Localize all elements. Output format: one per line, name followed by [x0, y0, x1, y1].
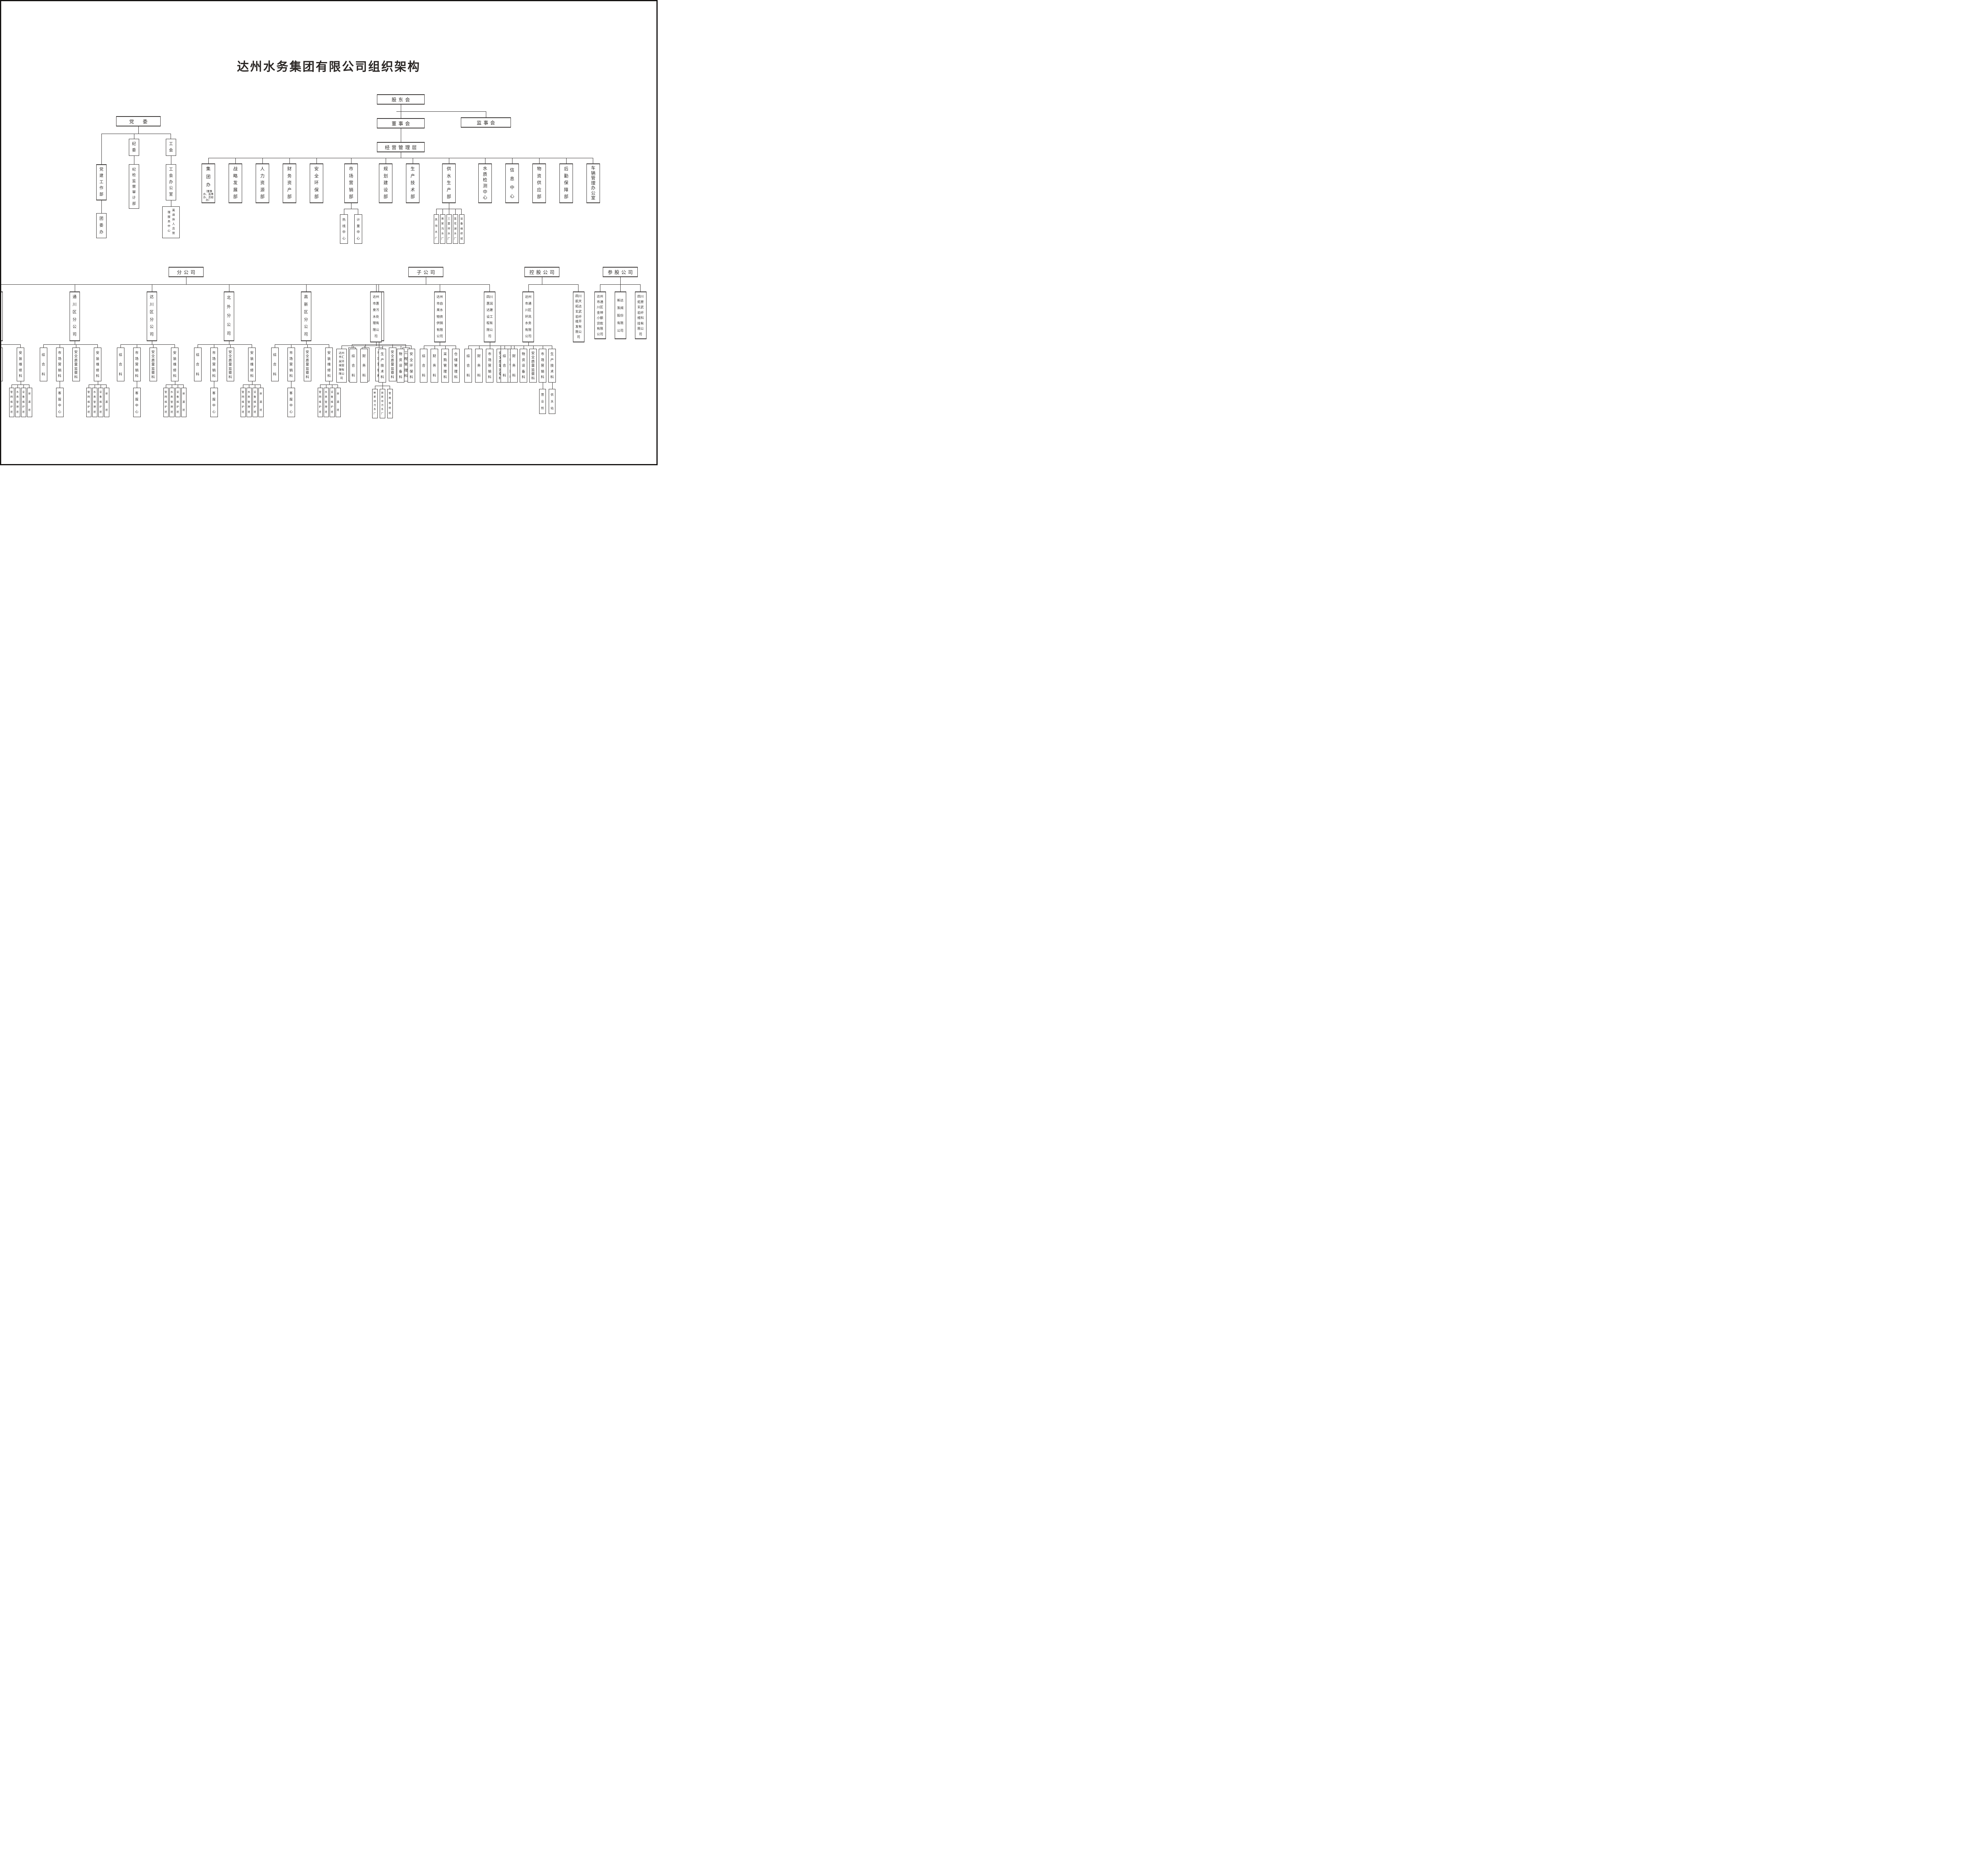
- org-node-box: 安装维修科: [171, 348, 179, 381]
- org-level: 分公司市中区分公司综合科市场营销科客服中心安全质量监察科安装维修科管网维护班水表…: [9, 267, 363, 417]
- org-node-box: 党建工作部: [96, 164, 107, 200]
- org-branch: 计量中心: [351, 209, 365, 244]
- org-node-label: 物资供应部: [536, 166, 542, 201]
- org-node-label: 达州市通川区金坤小额贷款有限公司: [596, 294, 604, 337]
- tree-invested: 参股公司达州市通川区金坤小额贷款有限公司新达泵阀股份有限公司四川炬原玄武岩纤维科…: [588, 267, 652, 339]
- org-node-box: 安全质量监察科: [389, 348, 396, 381]
- org-branch: 工会工会办公室离退休人员管理服务中心: [150, 134, 192, 238]
- org-node-label: 综合科: [41, 350, 46, 379]
- org-level: 管网维护班水表管理班设备维护班探漏班: [163, 381, 187, 417]
- org-branch: 安装维修科管网维护班水表管理班设备维护班探漏班: [237, 344, 267, 417]
- org-node-box: 信息中心: [505, 163, 519, 203]
- org-node-label: 综合科: [273, 350, 277, 379]
- org-node-label: 生产技术科: [380, 351, 384, 380]
- org-node-box: 市场营销科: [287, 348, 295, 381]
- org-node-label: 达州市汇泉环境管理有限公司: [338, 351, 345, 380]
- org-node-box: 设备维护班: [21, 388, 26, 417]
- org-node-box: 经营管理层: [377, 142, 425, 152]
- org-branch: 采购管理科: [440, 346, 450, 383]
- org-node-label: 凤翎水厂: [435, 217, 438, 241]
- org-branch: 纪委纪检监察审计部: [118, 134, 150, 238]
- org-node-label: 新达泵阀股份有限公司: [617, 297, 624, 334]
- org-node-box: 市中区分公司: [0, 291, 3, 341]
- org-node-label: 安全质量监察科: [151, 350, 155, 379]
- org-node-label: 参股公司: [606, 269, 635, 276]
- org-branch: 设备维护班: [252, 385, 258, 417]
- org-level: 综合科市场营销科客服中心安全质量监察科安装维修科管网维护班水表管理班设备维护班探…: [0, 341, 35, 417]
- org-level: 客服中心: [285, 381, 298, 417]
- org-node-box: 安全质量监察科: [0, 348, 3, 381]
- org-level: 客服中心: [130, 381, 144, 417]
- org-node-label: 客服中心: [135, 390, 139, 415]
- org-node-box: 达州市汇泉环境管理有限公司: [336, 349, 347, 383]
- org-node-label: 物资设备科: [521, 351, 526, 380]
- org-node-box: 探漏班: [181, 388, 186, 417]
- org-node-box: 后勤保障部: [559, 163, 573, 203]
- org-branch: 党建工作部团委办: [85, 134, 118, 238]
- org-node-label: 市场营销科: [540, 351, 545, 380]
- org-node-box: 纪检监察审计部: [129, 164, 139, 209]
- org-branch: 探漏班: [335, 385, 341, 417]
- org-node-label: 财务科: [362, 351, 366, 380]
- org-node-box: 四川炬原玄武岩纤维科技有限公司: [635, 291, 646, 339]
- org-node-box: 达州市自来水物资供销有限公司: [434, 291, 446, 342]
- org-node-box: 客服中心: [210, 388, 218, 417]
- org-node-label: 市场营销科: [135, 350, 139, 379]
- org-node-box: 莲花湖水厂: [453, 214, 458, 244]
- org-node-box: 市场营销科: [486, 349, 493, 383]
- org-node-box: 财务科: [360, 349, 368, 383]
- org-node-label: 党建工作部: [99, 167, 104, 198]
- org-node-box: 综合科: [271, 348, 279, 381]
- org-level: 团委办: [91, 200, 112, 238]
- org-level: 综合科市场营销科客服中心安全质量监察科安装维修科管网维护班水表管理班设备维护班探…: [114, 341, 190, 417]
- org-branch: 物资设备科: [519, 346, 528, 414]
- org-branch: 纪检监察审计部: [123, 164, 145, 209]
- org-node-label: 达州市惠泉污水处理有限公司: [372, 294, 380, 340]
- org-level: 管网维护班水表管理班设备维护班探漏班: [9, 381, 33, 417]
- org-branch: 安全环保部: [303, 158, 330, 244]
- org-node-label: 安全质量监察科: [531, 351, 535, 380]
- tree-holding: 控股公司达州市通川区环凤水务有限公司综合科财务科物资设备科安全质量监察科市场营销…: [496, 267, 588, 414]
- org-branch: 党 委党建工作部团委办纪委纪检监察审计部工会工会办公室离退休人员管理服务中心: [83, 116, 193, 238]
- org-branch: 综合科: [37, 344, 50, 417]
- org-branch: 设备维护班: [98, 385, 104, 417]
- org-node-label: 工会办公室: [169, 167, 174, 198]
- org-node-subtext: （董事办、监事办、总经办）: [202, 190, 214, 202]
- org-branch: 莲花湖水厂: [452, 209, 458, 244]
- org-node-box: 探漏班: [336, 388, 341, 417]
- org-level: 达州市通川区环凤水务有限公司综合科财务科物资设备科安全质量监察科市场营销科营业所…: [492, 277, 592, 414]
- org-node-box: 控股公司: [524, 267, 559, 277]
- org-node-label: 探漏班: [182, 390, 185, 415]
- org-node-box: 监事会: [461, 117, 511, 128]
- org-branch: 综合科: [268, 344, 282, 417]
- org-node-box: 股东会: [377, 94, 425, 105]
- org-branch: 物资供应部: [526, 158, 553, 244]
- org-branch: 通川区分公司综合科市场营销科客服中心安全质量监察科安装维修科管网维护班水表管理班…: [36, 284, 113, 417]
- org-node-label: 仓储管理科: [454, 351, 458, 380]
- org-node-label: 通川区分公司: [72, 294, 77, 339]
- org-node-box: 高新区分公司: [301, 291, 311, 341]
- org-node-label: 安装维修科: [18, 350, 23, 379]
- org-node-box: 计量中心: [354, 214, 362, 244]
- org-branch: 新达泵阀股份有限公司: [610, 284, 631, 339]
- org-node-label: 规划建设部: [383, 166, 388, 201]
- org-branch: 客服中心: [285, 388, 298, 417]
- org-branch: 达州市通川区金坤小额贷款有限公司: [590, 284, 610, 339]
- org-branch: 设备维修班: [458, 209, 465, 244]
- org-branch: 吴家沟水厂: [439, 209, 446, 244]
- org-node-label: 管网维修班: [388, 391, 392, 416]
- org-node-box: 安全质量监察科: [227, 348, 234, 381]
- org-branch: 后勤保障部: [553, 158, 580, 244]
- org-node-label: 设备维护班: [330, 390, 334, 415]
- org-node-label: 综合科: [421, 351, 426, 380]
- org-node-label: 安装维修科: [327, 350, 331, 379]
- org-node-box: 管网维护班: [163, 388, 169, 417]
- org-node-box: 安装维修科: [325, 348, 333, 381]
- org-branch: 市场营销科客服中心: [50, 344, 69, 417]
- org-node-box: 水质检测中心: [478, 163, 492, 203]
- org-node-label: 探漏班: [28, 390, 31, 415]
- org-node-label: 设备维护班: [176, 390, 179, 415]
- org-node-box: 生产技术科: [379, 349, 386, 383]
- org-branch: 离退休人员管理服务中心: [161, 206, 181, 238]
- org-branch: 市场营销科客服中心: [204, 344, 223, 417]
- org-branch: 车辆管理办公室: [580, 158, 607, 244]
- org-node-box: 市场营销部: [344, 163, 358, 203]
- org-node-box: 党 委: [116, 116, 161, 126]
- org-branch: 客服中心: [208, 388, 221, 417]
- org-branch: 战略发展部: [222, 158, 249, 244]
- org-node-box: 综合科: [420, 349, 427, 383]
- org-node-box: 市场营销科: [56, 348, 64, 381]
- org-node-box: 凤翎水厂: [434, 214, 439, 244]
- org-node-label: 市场营销科: [289, 350, 293, 379]
- org-node-box: 鲜家坝污水厂: [372, 389, 378, 418]
- org-node-box: 探漏班: [258, 388, 264, 417]
- org-level: 董事会经营管理层集团办（董事办、监事办、总经办）战略发展部人力资源部财务资产部安…: [193, 105, 608, 244]
- org-branch: 凤翎水厂: [433, 209, 439, 244]
- org-node-label: 达川区分公司: [149, 294, 154, 339]
- org-branch: 水表管理班: [246, 385, 252, 417]
- org-node-label: 综合科: [466, 351, 470, 380]
- org-node-box: 探漏班: [27, 388, 32, 417]
- org-node-box: 达州市通川区金坤小额贷款有限公司: [594, 291, 606, 339]
- org-node-box: 热线中心: [340, 214, 348, 244]
- org-node-box: 安全质量监察科: [149, 348, 157, 381]
- org-node-label: 经营管理层: [383, 144, 419, 151]
- org-node-label: 水质检测中心: [482, 166, 488, 201]
- org-branch: 财务科: [474, 346, 484, 383]
- org-branch: 人力资源部: [249, 158, 276, 244]
- org-level: 综合科市场营销科客服中心安全质量监察科安装维修科管网维护班水表管理班设备维护班探…: [268, 341, 344, 417]
- org-level: 集团办（董事办、监事办、总经办）战略发展部人力资源部财务资产部安全环保部市场营销…: [195, 152, 607, 244]
- org-branch: 市场营销科营业所: [538, 346, 547, 414]
- org-level: 综合科市场营销科客服中心安全质量监察科安装维修科管网维护班水表管理班设备维护班探…: [191, 341, 267, 417]
- org-node-box: 安全质量监察科: [72, 348, 80, 381]
- org-node-label: 安全环保部: [314, 166, 319, 201]
- org-level: 子公司达州市惠泉污水处理有限公司达州市汇泉环境管理有限公司综合科财务科生产技术科…: [334, 267, 517, 418]
- org-node-label: 客服中心: [212, 390, 216, 415]
- org-branch: 综合科: [191, 344, 204, 417]
- org-node-label: 客服中心: [289, 390, 293, 415]
- org-branch: 财务科: [509, 346, 519, 414]
- org-node-label: 达州市自来水物资供销有限公司: [436, 294, 444, 340]
- org-branch: 安装维修科管网维护班水表管理班设备维护班探漏班: [83, 344, 113, 417]
- org-node-box: 客服中心: [133, 388, 141, 417]
- org-node-label: 水表管理班: [93, 390, 96, 415]
- org-node-box: 安装维修科: [94, 348, 101, 381]
- org-node-box: 吴家沟水厂: [440, 214, 445, 244]
- org-level: 营业所: [539, 383, 546, 414]
- org-branch: 达川区分公司综合科市场营销科客服中心安全质量监察科安装维修科管网维护班水表管理班…: [113, 284, 190, 417]
- org-node-box: 营业所: [539, 389, 546, 414]
- org-branch: 综合科: [348, 346, 359, 418]
- org-branch: 综合科: [463, 346, 474, 383]
- org-node-label: 物资设备科: [398, 351, 403, 380]
- org-node-box: 财务资产部: [283, 163, 296, 203]
- org-node-box: 水表管理班: [247, 388, 252, 417]
- org-node-label: 党 委: [127, 118, 149, 125]
- org-node-box: 综合科: [40, 348, 47, 381]
- org-branch: 客服中心: [130, 388, 144, 417]
- org-node-box: 供水站: [549, 389, 555, 414]
- org-node-box: 设备维护班: [330, 388, 335, 417]
- org-branch: 管网维护班: [240, 385, 246, 417]
- org-node-label: 探漏班: [105, 390, 108, 415]
- org-branch: 管网维护班: [317, 385, 323, 417]
- org-node-box: 分公司: [169, 267, 204, 277]
- org-branch: 水表管理班: [323, 385, 329, 417]
- org-branch: 生产技术科供水站: [547, 346, 557, 414]
- org-branch: 安全质量监察科: [69, 344, 83, 417]
- org-node-label: 安全环保科: [409, 351, 414, 380]
- org-node-label: 股东会: [390, 96, 412, 103]
- org-node-label: 鲜家坝污水厂: [373, 391, 377, 416]
- org-branch: 高新区分公司综合科市场营销科客服中心安全质量监察科安装维修科管网维护班水表管理班…: [268, 284, 345, 417]
- org-node-box: 设备维修班: [459, 214, 464, 244]
- org-branch: 市中区分公司综合科市场营销科客服中心安全质量监察科安装维修科管网维护班水表管理班…: [0, 284, 36, 417]
- org-node-box: 仓储管理科: [452, 349, 460, 383]
- org-node-label: 控股公司: [527, 269, 556, 276]
- org-node-box: 战略发展部: [229, 163, 242, 203]
- org-node-label: 市场营销科: [58, 350, 62, 379]
- org-node-box: 四川惠润达建设工程有限公司: [484, 291, 495, 342]
- org-level: 供水站: [549, 383, 555, 414]
- org-level: 党 委党建工作部团委办纪委纪检监察审计部工会工会办公室离退休人员管理服务中心: [97, 116, 180, 238]
- org-node-label: 纪委: [132, 141, 137, 153]
- org-node-label: 设备维护班: [99, 390, 102, 415]
- org-branch: 管网维修班: [386, 386, 394, 418]
- org-level: 鲜家坝污水厂周家坝污水厂管网维修班: [371, 383, 394, 418]
- org-node-label: 设备维修班: [460, 217, 463, 241]
- org-node-label: 莲花湖水厂: [454, 217, 457, 241]
- org-node-label: 子公司: [415, 269, 437, 276]
- org-level: 客服中心: [53, 381, 66, 417]
- org-chart-page: 达州水务集团有限公司组织架构 监事会 股东会董事会经营管理层集团办（董事办、监事…: [0, 0, 658, 465]
- org-branch: 设备维护班: [21, 385, 27, 417]
- org-node-box: 达州市通川区环凤水务有限公司: [522, 291, 534, 342]
- org-node-label: 周家坝污水厂: [381, 391, 384, 416]
- org-node-label: 纪检监察审计部: [132, 167, 136, 206]
- org-node-box: 综合科: [464, 349, 472, 383]
- org-node-box: 管网维修班: [387, 389, 393, 418]
- org-node-label: 财务资产部: [287, 166, 292, 201]
- org-node-label: 供水生产部: [446, 166, 452, 201]
- org-level: 股东会董事会经营管理层集团办（董事办、监事办、总经办）战略发展部人力资源部财务资…: [202, 94, 600, 244]
- org-branch: 三里坪水厂: [446, 209, 452, 244]
- org-node-label: 分公司: [175, 269, 197, 276]
- org-node-label: 探漏班: [336, 390, 340, 415]
- org-level: 管网维护班水表管理班设备维护班探漏班: [240, 381, 264, 417]
- org-branch: 北外分公司综合科市场营销科客服中心安全质量监察科安装维修科管网维护班水表管理班设…: [190, 284, 268, 417]
- org-level: 综合科市场营销科客服中心安全质量监察科安装维修科管网维护班水表管理班设备维护班探…: [37, 341, 113, 417]
- org-node-box: 安装维修科: [17, 348, 24, 381]
- org-branch: 设备维护班: [329, 385, 335, 417]
- org-node-box: 财务科: [510, 349, 518, 383]
- org-node-label: 安装维修科: [250, 350, 254, 379]
- org-branch: 市场营销科客服中心: [127, 344, 146, 417]
- org-node-label: 市场营销部: [348, 166, 354, 201]
- org-branch: 水表管理班: [92, 385, 98, 417]
- org-node-label: 供水站: [550, 391, 554, 412]
- org-node-box: 综合科: [194, 348, 202, 381]
- connector-line: [396, 111, 486, 112]
- org-branch: 安全环保科: [406, 346, 417, 418]
- org-branch: 探漏班: [258, 385, 264, 417]
- org-branch: 参股公司达州市通川区金坤小额贷款有限公司新达泵阀股份有限公司四川炬原玄武岩纤维科…: [589, 267, 652, 339]
- org-branch: 水质检测中心: [472, 158, 499, 244]
- org-level: 热线中心计量中心: [337, 203, 365, 244]
- org-node-label: 财务科: [512, 351, 516, 380]
- org-branch: 信息中心: [499, 158, 526, 244]
- org-node-box: 水表管理班: [15, 388, 20, 417]
- org-node-box: 人力资源部: [256, 163, 269, 203]
- org-branch: 综合科: [500, 346, 509, 414]
- org-node-label: 设备维护班: [22, 390, 25, 415]
- org-node-box: 集团办（董事办、监事办、总经办）: [202, 163, 215, 203]
- org-node-box: 物资供应部: [532, 163, 546, 203]
- org-level: 综合科财务科采购管理科仓储管理科: [418, 342, 461, 383]
- org-level: 综合科财务科市场营销科安全质量监察科工程管理科: [463, 342, 516, 383]
- org-branch: 达州市自来水物资供销有限公司综合科财务科采购管理科仓储管理科: [417, 284, 462, 418]
- org-node-label: 水表管理班: [324, 390, 328, 415]
- org-node-box: 安全环保科: [408, 349, 415, 383]
- org-node-label: 安全质量监察科: [390, 350, 395, 379]
- org-branch: 财务科: [359, 346, 369, 418]
- org-node-label: 安全质量监察科: [228, 350, 233, 379]
- tree-governance: 监事会 股东会董事会经营管理层集团办（董事办、监事办、总经办）战略发展部人力资源…: [202, 94, 600, 244]
- org-node-box: 参股公司: [603, 267, 638, 277]
- org-branch: 控股公司达州市通川区环凤水务有限公司综合科财务科物资设备科安全质量监察科市场营销…: [491, 267, 593, 414]
- org-node-label: 市场营销科: [487, 351, 492, 380]
- org-node-box: 物资设备科: [397, 349, 404, 383]
- org-branch: 仓储管理科: [450, 346, 461, 383]
- org-branch: 设备维护班: [175, 385, 181, 417]
- org-node-label: 吴家沟水厂: [441, 217, 444, 241]
- org-node-label: 三里坪水厂: [447, 217, 450, 241]
- org-node-box: 周家坝污水厂: [380, 389, 385, 418]
- org-level: 参股公司达州市通川区金坤小额贷款有限公司新达泵阀股份有限公司四川炬原玄武岩纤维科…: [588, 267, 652, 339]
- org-node-box: 管网维护班: [86, 388, 91, 417]
- org-node-box: 水表管理班: [92, 388, 97, 417]
- org-node-label: 综合科: [118, 350, 123, 379]
- org-branch: 鲜家坝污水厂: [371, 386, 379, 418]
- org-node-box: 团委办: [96, 213, 107, 238]
- org-node-box: 采购管理科: [441, 349, 449, 383]
- org-node-label: 高新区分公司: [303, 294, 309, 339]
- org-branch: 供水站: [549, 389, 555, 414]
- org-node-box: 客服中心: [287, 388, 295, 417]
- org-node-box: 工会: [166, 139, 176, 156]
- org-node-label: 信息中心: [509, 166, 515, 201]
- org-node-box: 管网维护班: [241, 388, 246, 417]
- org-branch: 探漏班: [27, 385, 33, 417]
- org-node-box: 探漏班: [104, 388, 109, 417]
- org-node-label: 热线中心: [342, 217, 346, 241]
- org-level: 凤翎水厂吴家沟水厂三里坪水厂莲花湖水厂设备维修班: [433, 203, 465, 244]
- org-node-box: 设备维护班: [252, 388, 258, 417]
- connector-line: [486, 111, 486, 118]
- org-node-label: 综合科: [502, 351, 507, 380]
- org-branch: 财务资产部: [276, 158, 303, 244]
- org-node-label: 探漏班: [259, 390, 262, 415]
- org-node-box: 市场营销科: [210, 348, 218, 381]
- org-node-label: 后勤保障部: [563, 166, 569, 201]
- org-node-box: 子公司: [408, 267, 443, 277]
- org-node-box: 管网维护班: [9, 388, 14, 417]
- org-level: 控股公司达州市通川区环凤水务有限公司综合科财务科物资设备科安全质量监察科市场营销…: [496, 267, 588, 414]
- org-node-label: 安全质量监察科: [305, 350, 310, 379]
- org-branch: 管网维护班: [163, 385, 169, 417]
- org-node-label: 设备维护班: [253, 390, 256, 415]
- org-node-label: 集团办: [206, 165, 211, 189]
- org-branch: 经营管理层集团办（董事办、监事办、总经办）战略发展部人力资源部财务资产部安全环保…: [194, 142, 608, 244]
- org-node-label: 工会: [169, 141, 174, 153]
- org-node-label: 战略发展部: [233, 166, 238, 201]
- org-node-box: 达州市惠泉污水处理有限公司: [370, 291, 382, 342]
- org-node-label: 生产技术部: [410, 166, 415, 201]
- org-node-box: 董事会: [377, 118, 425, 128]
- org-node-label: 客服中心: [58, 390, 62, 415]
- org-node-box: 管网维护班: [318, 388, 323, 417]
- tree-subsidiaries: 子公司达州市惠泉污水处理有限公司达州市汇泉环境管理有限公司综合科财务科生产技术科…: [334, 267, 517, 418]
- org-node-label: 四川航天拓达玄武岩纤维开发有限公司: [575, 294, 582, 340]
- org-node-label: 管网维护班: [318, 390, 322, 415]
- org-branch: 供水生产部凤翎水厂吴家沟水厂三里坪水厂莲花湖水厂设备维修班: [426, 158, 472, 244]
- org-node-box: 离退休人员管理服务中心: [162, 206, 180, 238]
- org-node-box: 供水生产部: [442, 163, 456, 203]
- org-node-label: 综合科: [351, 351, 355, 380]
- org-branch: 探漏班: [104, 385, 110, 417]
- org-node-label: 市场营销科: [212, 350, 216, 379]
- org-branch: 工会办公室离退休人员管理服务中心: [156, 164, 186, 238]
- org-node-label: 监事会: [475, 119, 497, 126]
- org-node-label: 营业所: [541, 391, 544, 412]
- org-node-box: 客服中心: [56, 388, 64, 417]
- org-branch: 安全质量监察科: [0, 344, 6, 417]
- org-level: 党建工作部团委办纪委纪检监察审计部工会工会办公室离退休人员管理服务中心: [85, 126, 192, 238]
- org-branch: 物资设备科: [395, 346, 406, 418]
- org-branch: 规划建设部: [372, 158, 399, 244]
- org-branch: 安装维修科管网维护班水表管理班设备维护班探漏班: [160, 344, 190, 417]
- org-node-box: 达川区分公司: [147, 291, 157, 341]
- org-branch: 综合科: [418, 346, 429, 383]
- org-node-label: 团委办: [99, 216, 104, 236]
- org-level: 经营管理层集团办（董事办、监事办、总经办）战略发展部人力资源部财务资产部安全环保…: [194, 128, 608, 244]
